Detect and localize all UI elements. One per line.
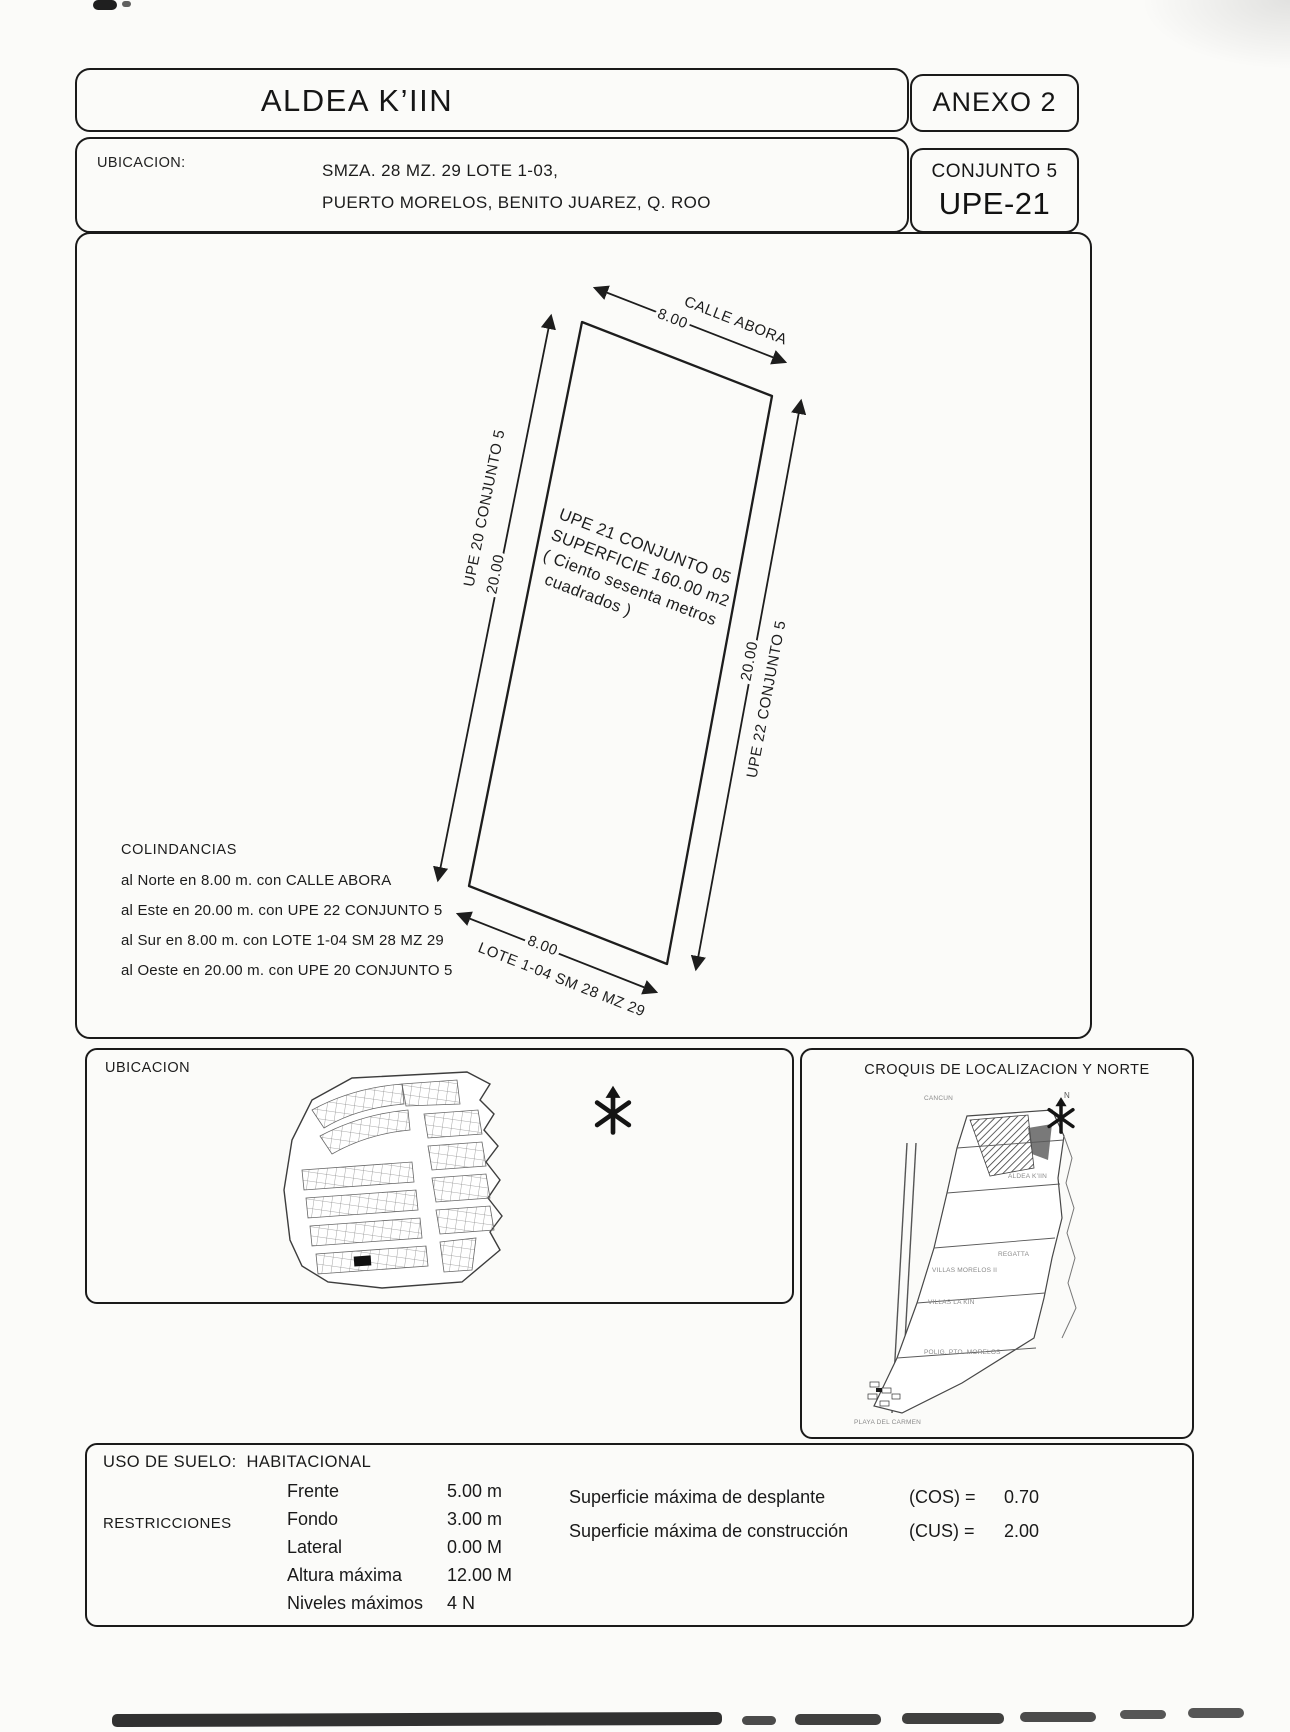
land-use-line: USO DE SUELO: HABITACIONAL xyxy=(103,1453,371,1472)
land-use-label: USO DE SUELO: xyxy=(103,1453,237,1471)
east-dimension-arrow xyxy=(696,401,801,969)
croquis-label-villas-la-kin: VILLAS LA KIN xyxy=(928,1299,975,1306)
restriction-value: 0.00 M xyxy=(447,1537,502,1558)
annex-label: ANEXO 2 xyxy=(912,87,1077,118)
scan-artifact xyxy=(795,1714,881,1725)
colindancias-item: al Oeste en 20.00 m. con UPE 20 CONJUNTO… xyxy=(121,962,453,979)
restriction-label: Fondo xyxy=(287,1509,338,1529)
coefficient-key: (COS) = xyxy=(909,1487,976,1508)
scan-artifact xyxy=(1140,0,1290,70)
north-street-label: CALLE ABORA xyxy=(682,293,790,348)
restriction-row: Frente 5.00 m xyxy=(287,1481,617,1509)
location-line2: PUERTO MORELOS, BENITO JUAREZ, Q. ROO xyxy=(322,193,711,213)
restriction-label: Frente xyxy=(287,1481,339,1501)
coefficient-value: 2.00 xyxy=(1004,1521,1039,1542)
croquis-label-regatta: REGATTA xyxy=(998,1251,1030,1258)
croquis-box: CROQUIS DE LOCALIZACION Y NORTE xyxy=(800,1048,1194,1439)
restriction-label: Niveles máximos xyxy=(287,1593,423,1613)
location-label: UBICACION: xyxy=(97,155,186,171)
scan-artifact xyxy=(93,0,117,10)
coefficient-label: Superficie máxima de desplante xyxy=(569,1487,825,1507)
land-use-value: HABITACIONAL xyxy=(247,1453,372,1471)
croquis-label-playa-del-carmen: PLAYA DEL CARMEN xyxy=(854,1419,921,1426)
croquis-label-polig-pto-morelos: POLIG. PTO. MORELOS xyxy=(924,1349,1001,1356)
site-plan-box: CALLE ABORA 8.00 UPE 20 CONJUNTO 5 20.00… xyxy=(75,232,1092,1039)
restriction-row: Altura máxima 12.00 M xyxy=(287,1565,617,1593)
coefficients-table: Superficie máxima de desplante (COS) = 0… xyxy=(569,1487,1169,1555)
location-map-title: UBICACION xyxy=(105,1060,190,1076)
croquis-label-aldea: ALDEA K’IIN xyxy=(1008,1173,1047,1180)
restrictions-table: Frente 5.00 m Fondo 3.00 m Lateral 0.00 … xyxy=(287,1481,617,1621)
south-dimension-value: 8.00 xyxy=(525,932,560,959)
restriction-label: Altura máxima xyxy=(287,1565,402,1585)
coefficient-label: Superficie máxima de construcción xyxy=(569,1521,848,1541)
zoning-box: USO DE SUELO: HABITACIONAL RESTRICCIONES… xyxy=(85,1443,1194,1627)
colindancias-item: al Sur en 8.00 m. con LOTE 1-04 SM 28 MZ… xyxy=(121,932,453,949)
colindancias-heading: COLINDANCIAS xyxy=(121,842,453,858)
scan-artifact xyxy=(122,1,131,7)
parcel-caption: UPE 21 CONJUNTO 05 SUPERFICIE 160.00 m2 … xyxy=(533,505,740,651)
parcel-outline xyxy=(469,322,772,964)
coefficient-key: (CUS) = xyxy=(909,1521,975,1542)
restriction-row: Fondo 3.00 m xyxy=(287,1509,617,1537)
scanned-document-page: ALDEA K’IIN ANEXO 2 UBICACION: SMZA. 28 … xyxy=(0,0,1290,1732)
restriction-value: 5.00 m xyxy=(447,1481,502,1502)
restriction-value: 3.00 m xyxy=(447,1509,502,1530)
scan-artifact xyxy=(1120,1710,1166,1719)
scan-artifact xyxy=(902,1713,1004,1724)
scan-artifact xyxy=(1188,1708,1244,1718)
coefficient-row: Superficie máxima de desplante (COS) = 0… xyxy=(569,1487,1169,1521)
scan-artifact xyxy=(112,1712,722,1727)
south-neighbor-label: LOTE 1-04 SM 28 MZ 29 xyxy=(476,939,648,1020)
location-map-box: UBICACION xyxy=(85,1048,794,1304)
upe-label: UPE-21 xyxy=(912,186,1077,222)
croquis-label-cancun: CANCUN xyxy=(924,1095,953,1102)
restriction-value: 12.00 M xyxy=(447,1565,512,1586)
coefficient-value: 0.70 xyxy=(1004,1487,1039,1508)
colindancias-item: al Norte en 8.00 m. con CALLE ABORA xyxy=(121,872,453,889)
location-box: UBICACION: SMZA. 28 MZ. 29 LOTE 1-03, PU… xyxy=(75,137,909,233)
page-title: ALDEA K’IIN xyxy=(77,83,637,119)
croquis-title: CROQUIS DE LOCALIZACION Y NORTE xyxy=(802,1062,1192,1078)
scan-artifact xyxy=(742,1716,776,1725)
scan-artifact xyxy=(1020,1712,1096,1722)
map-highlight-lot xyxy=(354,1255,372,1266)
restriction-value: 4 N xyxy=(447,1593,475,1614)
west-dimension-arrow xyxy=(438,316,551,880)
restrictions-label: RESTRICCIONES xyxy=(103,1515,232,1532)
restriction-row: Lateral 0.00 M xyxy=(287,1537,617,1565)
croquis-region-outline xyxy=(874,1110,1064,1413)
north-arrow-icon xyxy=(585,1082,641,1140)
restriction-label: Lateral xyxy=(287,1537,342,1557)
west-dimension-value: 20.00 xyxy=(483,553,508,596)
croquis-north-arrow-icon xyxy=(1040,1094,1082,1138)
annex-box: ANEXO 2 xyxy=(910,74,1079,132)
croquis-label-villas-morelos: VILLAS MORELOS II xyxy=(932,1267,997,1274)
title-box: ALDEA K’IIN xyxy=(75,68,909,132)
restriction-row: Niveles máximos 4 N xyxy=(287,1593,617,1621)
unit-box: CONJUNTO 5 UPE-21 xyxy=(910,148,1079,233)
east-dimension-value: 20.00 xyxy=(738,640,762,682)
coefficient-row: Superficie máxima de construcción (CUS) … xyxy=(569,1521,1169,1555)
conjunto-label: CONJUNTO 5 xyxy=(912,161,1077,183)
croquis-map-sketch: CANCUN ALDEA K’IIN REGATTA VILLAS MORELO… xyxy=(812,1088,1182,1430)
colindancias-item: al Este en 20.00 m. con UPE 22 CONJUNTO … xyxy=(121,902,453,919)
colindancias-block: COLINDANCIAS al Norte en 8.00 m. con CAL… xyxy=(121,842,453,992)
location-line1: SMZA. 28 MZ. 29 LOTE 1-03, xyxy=(322,161,558,181)
